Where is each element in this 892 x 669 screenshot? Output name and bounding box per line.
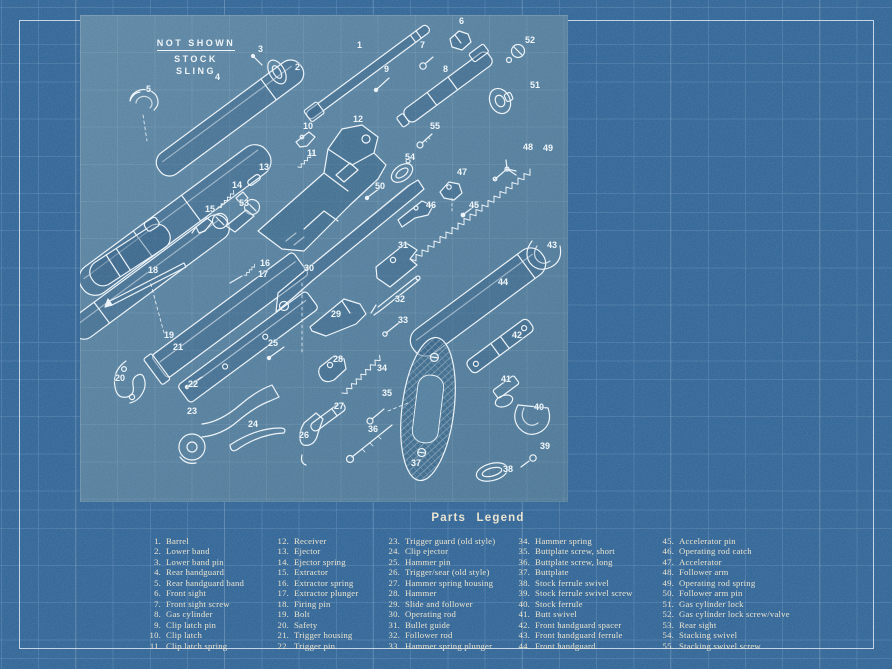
legend-item: 36.Buttplate screw, long [509,557,633,567]
part-number-label: 17 [258,269,268,279]
part-number-label: 8 [443,64,448,74]
part-number-label: 6 [459,16,464,26]
blueprint-poster: { "colors": { "background": "#2d6294", "… [0,0,892,669]
legend-item-name: Receiver [294,536,326,546]
bullet-guide-shape [371,243,420,315]
legend-item-number: 11. [140,641,161,651]
legend-item: 44.Front handguard [509,641,633,651]
legend-item-name: Firing pin [294,599,331,609]
legend-item-number: 35. [509,546,530,556]
legend-column: 45.Accelerator pin46.Operating rod catch… [653,536,790,651]
legend-item-number: 40. [509,599,530,609]
part-number-label: 26 [299,430,309,440]
legend-item-name: Hammer spring housing [405,578,493,588]
legend-item: 28.Hammer [379,588,495,598]
part-number-label: 54 [405,152,415,162]
legend-item-number: 24. [379,546,400,556]
legend-item-name: Stock ferrule swivel screw [535,588,633,598]
legend-item: 20.Safety [268,620,358,630]
part-number-label: 48 [523,142,533,152]
legend-item: 33.Hammer spring plunger [379,641,495,651]
legend-item: 25.Hammer pin [379,557,495,567]
legend-item-name: Operating rod catch [679,546,752,556]
legend-item-number: 43. [509,630,530,640]
legend-item-number: 48. [653,567,674,577]
legend-item: 54.Stacking swivel [653,630,790,640]
legend-item-number: 19. [268,609,289,619]
part-number-label: 11 [307,148,317,158]
legend-item-name: Clip ejector [405,546,448,556]
legend-item: 9.Clip latch pin [140,620,244,630]
part-number-label: 2 [295,62,300,72]
legend-item: 55.Stacking swivel screw [653,641,790,651]
part-number-label: 35 [382,388,392,398]
legend-item: 19.Bolt [268,609,358,619]
part-number-label: 24 [248,419,258,429]
legend-item: 17.Extractor plunger [268,588,358,598]
legend-column: 23.Trigger guard (old style)24.Clip ejec… [379,536,495,651]
legend-item: 16.Extractor spring [268,578,358,588]
legend-item: 23.Trigger guard (old style) [379,536,495,546]
part-number-label: 20 [115,373,125,383]
legend-item-name: Accelerator [679,557,722,567]
legend-item-number: 32. [379,630,400,640]
legend-item: 7.Front sight screw [140,599,244,609]
legend-item: 5.Rear handguard band [140,578,244,588]
legend-item-name: Extractor [294,567,328,577]
buttplate-shape [347,334,463,483]
part-number-label: 10 [303,121,313,131]
part-number-label: 46 [426,200,436,210]
part-number-label: 42 [512,330,522,340]
legend-item-name: Follower rod [405,630,453,640]
legend-item: 50.Follower arm pin [653,588,790,598]
legend-item-name: Barrel [166,536,189,546]
part-number-label: 49 [543,143,553,153]
legend-item-name: Safety [294,620,317,630]
part-number-label: 52 [525,35,535,45]
legend-item: 2.Lower band [140,546,244,556]
legend-item-name: Hammer spring plunger [405,641,492,651]
clip-ejector-shape [230,428,285,451]
legend-item-name: Slide and follower [405,599,473,609]
legend-item-name: Front handguard [535,641,596,651]
legend-item: 13.Ejector [268,546,358,556]
legend-item-number: 22. [268,641,289,651]
legend-item-name: Front sight [166,588,206,598]
legend-item: 30.Operating rod [379,609,495,619]
legend-item-number: 53. [653,620,674,630]
legend-item: 21.Trigger housing [268,630,358,640]
legend-item: 35.Buttplate screw, short [509,546,633,556]
legend-item-name: Rear sight [679,620,716,630]
part-number-label: 21 [173,342,183,352]
legend-item-name: Front sight screw [166,599,230,609]
legend-item-number: 50. [653,588,674,598]
legend-item-name: Clip latch spring [166,641,227,651]
legend-item: 45.Accelerator pin [653,536,790,546]
legend-item-name: Operating rod [405,609,456,619]
legend-column: 34.Hammer spring35.Buttplate screw, shor… [509,536,633,651]
legend-item-number: 2. [140,546,161,556]
legend-item-name: Stacking swivel [679,630,737,640]
part-number-label: 13 [259,162,269,172]
legend-item-number: 44. [509,641,530,651]
legend-item-name: Hammer [405,588,437,598]
legend-column: 12.Receiver13.Ejector14.Ejector spring15… [268,536,358,651]
part-number-label: 7 [420,40,425,50]
hammer-group-shape [309,322,400,433]
part-number-label: 25 [268,338,278,348]
not-shown-sling: SLING [176,66,216,76]
legend-item: 51.Gas cylinder lock [653,599,790,609]
legend-item-name: Stacking swivel screw [679,641,761,651]
legend-item-name: Front handguard ferrule [535,630,623,640]
part-number-label: 44 [498,277,508,287]
part-number-label: 30 [304,263,314,273]
legend-item-number: 37. [509,567,530,577]
legend-item-name: Accelerator pin [679,536,736,546]
not-shown-stock: STOCK [174,54,218,64]
parts-legend: 1.Barrel2.Lower band3.Lower band pin4.Re… [0,536,892,651]
legend-item-name: Gas cylinder [166,609,213,619]
legend-item: 40.Stock ferrule [509,599,633,609]
part-number-label: 36 [368,424,378,434]
part-number-label: 43 [547,240,557,250]
legend-item-name: Hammer spring [535,536,592,546]
part-number-label: 29 [331,309,341,319]
part-number-label: 9 [384,64,389,74]
legend-item: 39.Stock ferrule swivel screw [509,588,633,598]
part-number-label: 19 [164,330,174,340]
part-number-label: 15 [205,204,215,214]
gas-cylinder-lock-shape [485,45,524,118]
legend-item-number: 33. [379,641,400,651]
legend-item: 41.Butt swivel [509,609,633,619]
legend-item-number: 8. [140,609,161,619]
legend-item: 43.Front handguard ferrule [509,630,633,640]
legend-item-number: 1. [140,536,161,546]
legend-column: 1.Barrel2.Lower band3.Lower band pin4.Re… [140,536,244,651]
part-number-label: 23 [187,406,197,416]
legend-item-name: Gas cylinder lock screw/valve [679,609,790,619]
legend-item-name: Trigger housing [294,630,352,640]
legend-item-number: 27. [379,578,400,588]
legend-item-number: 18. [268,599,289,609]
legend-item: 12.Receiver [268,536,358,546]
legend-item-name: Butt swivel [535,609,577,619]
legend-item-name: Trigger/sear (old style) [405,567,490,577]
legend-item-number: 15. [268,567,289,577]
legend-item-name: Hammer pin [405,557,451,567]
legend-item-name: Rear handguard [166,567,224,577]
legend-item: 38.Stock ferrule swivel [509,578,633,588]
legend-item-name: Clip latch [166,630,202,640]
legend-item: 11.Clip latch spring [140,641,244,651]
legend-item-number: 12. [268,536,289,546]
legend-item-name: Follower arm pin [679,588,743,598]
legend-item: 24.Clip ejector [379,546,495,556]
legend-item-name: Buttplate screw, long [535,557,613,567]
exploded-parts-diagram: 1234567891011121314151617181920212223242… [80,15,568,502]
legend-item: 26.Trigger/sear (old style) [379,567,495,577]
clip-latch-pin-shape [374,78,389,92]
legend-item-name: Operating rod spring [679,578,755,588]
legend-item-name: Ejector [294,546,320,556]
legend-item-name: Bolt [294,609,310,619]
legend-item: 3.Lower band pin [140,557,244,567]
legend-item-name: Trigger pin [294,641,335,651]
part-number-label: 41 [501,374,511,384]
legend-item-number: 16. [268,578,289,588]
part-number-label: 28 [333,354,343,364]
part-number-label: 22 [188,379,198,389]
legend-item-name: Trigger guard (old style) [405,536,495,546]
gas-cylinder-shape [391,44,496,129]
part-number-label: 39 [540,441,550,451]
legend-item-number: 39. [509,588,530,598]
legend-item-name: Buttplate [535,567,569,577]
legend-item-number: 52. [653,609,674,619]
part-number-label: 47 [457,167,467,177]
part-number-label: 51 [530,80,540,90]
legend-item-name: Follower arm [679,567,728,577]
legend-item-number: 10. [140,630,161,640]
legend-item-number: 9. [140,620,161,630]
legend-item-name: Lower band pin [166,557,224,567]
legend-item: 49.Operating rod spring [653,578,790,588]
legend-item-number: 17. [268,588,289,598]
legend-item-number: 6. [140,588,161,598]
legend-item-name: Ejector spring [294,557,346,567]
legend-item: 8.Gas cylinder [140,609,244,619]
legend-item-number: 38. [509,578,530,588]
legend-item-number: 42. [509,620,530,630]
legend-item-name: Stock ferrule [535,599,583,609]
legend-item: 32.Follower rod [379,630,495,640]
legend-item-number: 34. [509,536,530,546]
part-number-label: 31 [398,240,408,250]
legend-item: 47.Accelerator [653,557,790,567]
part-number-label: 37 [411,458,421,468]
legend-item-number: 26. [379,567,400,577]
legend-item-number: 20. [268,620,289,630]
legend-item-number: 5. [140,578,161,588]
legend-item: 15.Extractor [268,567,358,577]
legend-item: 10.Clip latch [140,630,244,640]
extractor-spring-shape [230,264,255,283]
legend-item: 22.Trigger pin [268,641,358,651]
legend-item: 53.Rear sight [653,620,790,630]
part-number-label: 16 [260,258,270,268]
legend-item: 34.Hammer spring [509,536,633,546]
part-number-label: 32 [395,294,405,304]
legend-item-number: 47. [653,557,674,567]
legend-item-number: 49. [653,578,674,588]
part-number-label: 27 [334,401,344,411]
legend-item-number: 28. [379,588,400,598]
legend-item-number: 46. [653,546,674,556]
legend-item: 14.Ejector spring [268,557,358,567]
legend-item: 48.Follower arm [653,567,790,577]
legend-item: 42.Front handguard spacer [509,620,633,630]
legend-item: 6.Front sight [140,588,244,598]
legend-item-number: 31. [379,620,400,630]
legend-item-name: Rear handguard band [166,578,244,588]
part-number-label: 5 [146,84,151,94]
legend-item: 1.Barrel [140,536,244,546]
legend-item-number: 29. [379,599,400,609]
legend-item-name: Front handguard spacer [535,620,621,630]
rear-handguard-band-shape [130,90,158,141]
legend-item-number: 23. [379,536,400,546]
legend-item-number: 30. [379,609,400,619]
legend-item-name: Lower band [166,546,210,556]
legend-item-number: 45. [653,536,674,546]
part-number-label: 3 [258,44,263,54]
part-number-label: 38 [503,464,513,474]
legend-item-number: 7. [140,599,161,609]
legend-item: 52.Gas cylinder lock screw/valve [653,609,790,619]
part-number-label: 40 [534,402,544,412]
legend-item-number: 55. [653,641,674,651]
legend-item-number: 36. [509,557,530,567]
part-number-label: 1 [357,40,362,50]
legend-item-name: Clip latch pin [166,620,216,630]
legend-item-number: 54. [653,630,674,640]
legend-item-number: 21. [268,630,289,640]
part-number-label: 50 [375,181,385,191]
part-number-label: 18 [148,265,158,275]
legend-item: 46.Operating rod catch [653,546,790,556]
legend-item-number: 41. [509,609,530,619]
legend-item-name: Extractor plunger [294,588,358,598]
legend-item: 37.Buttplate [509,567,633,577]
part-number-label: 55 [430,121,440,131]
legend-item-number: 51. [653,599,674,609]
legend-item: 18.Firing pin [268,599,358,609]
legend-item: 27.Hammer spring housing [379,578,495,588]
legend-item-number: 25. [379,557,400,567]
legend-item-name: Gas cylinder lock [679,599,744,609]
not-shown-heading: NOT SHOWN [157,37,236,51]
legend-item-number: 13. [268,546,289,556]
legend-title: Parts Legend [431,512,524,524]
part-number-label: 12 [353,114,363,124]
legend-item: 29.Slide and follower [379,599,495,609]
legend-item-number: 4. [140,567,161,577]
legend-item-number: 14. [268,557,289,567]
legend-item-name: Stock ferrule swivel [535,578,609,588]
legend-item-name: Buttplate screw, short [535,546,615,556]
legend-item-name: Bullet guide [405,620,450,630]
part-number-label: 33 [398,315,408,325]
legend-item-number: 3. [140,557,161,567]
part-number-label: 34 [377,363,387,373]
legend-item: 31.Bullet guide [379,620,495,630]
diagram-panel: 1234567891011121314151617181920212223242… [80,15,568,502]
part-number-label: 14 [232,180,242,190]
part-number-label: 53 [239,198,249,208]
not-shown-note: NOT SHOWN STOCK SLING [148,37,244,77]
legend-item-name: Extractor spring [294,578,353,588]
legend-item: 4.Rear handguard [140,567,244,577]
part-number-label: 45 [469,200,479,210]
